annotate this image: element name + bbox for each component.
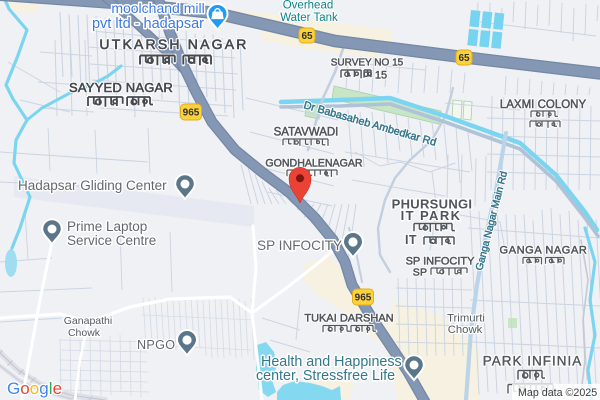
svg-text:GONDHALENAGAR: GONDHALENAGAR: [265, 158, 362, 170]
svg-text:SURVEY NO 15: SURVEY NO 15: [331, 58, 404, 69]
svg-text:Chowk: Chowk: [68, 327, 101, 339]
svg-text:TUKAI DARSHAN: TUKAI DARSHAN: [304, 313, 393, 325]
svg-text:Trimurti: Trimurti: [447, 313, 485, 325]
svg-text:IT PARK: IT PARK: [401, 208, 462, 223]
svg-text:LAXMI COLONY: LAXMI COLONY: [500, 99, 587, 111]
svg-text:SP INFOCITY: SP INFOCITY: [257, 238, 342, 253]
svg-text:Prime Laptop: Prime Laptop: [67, 219, 147, 234]
svg-text:SATAVWADI: SATAVWADI: [274, 127, 339, 139]
svg-text:o: o: [30, 379, 39, 398]
svg-text:65: 65: [458, 53, 470, 64]
svg-text:GANGA NAGAR: GANGA NAGAR: [500, 245, 588, 257]
svg-text:Map data ©2025: Map data ©2025: [518, 387, 597, 399]
svg-text:Service Centre: Service Centre: [67, 233, 156, 248]
svg-text:15: 15: [375, 70, 387, 82]
svg-text:UTKARSH NAGAR: UTKARSH NAGAR: [99, 36, 248, 52]
svg-text:e: e: [53, 379, 62, 398]
svg-text:Water Tank: Water Tank: [280, 12, 338, 24]
svg-text:965: 965: [355, 293, 372, 304]
svg-text:IT: IT: [405, 233, 417, 247]
svg-text:o: o: [20, 379, 29, 398]
svg-text:SAYYED NAGAR: SAYYED NAGAR: [69, 80, 173, 95]
svg-text:Ganapathi: Ganapathi: [64, 315, 112, 327]
svg-text:moolchand mill: moolchand mill: [111, 0, 204, 16]
svg-text:center, Stressfree Life: center, Stressfree Life: [256, 368, 395, 384]
svg-text:pvt ltd - hadapsar: pvt ltd - hadapsar: [92, 16, 204, 32]
svg-text:NPGO: NPGO: [137, 338, 175, 352]
svg-text:Overhead: Overhead: [283, 0, 334, 12]
svg-text:SP: SP: [413, 267, 428, 279]
svg-text:PARK INFINIA: PARK INFINIA: [483, 354, 583, 369]
svg-text:Hadapsar Gliding Center: Hadapsar Gliding Center: [18, 178, 167, 193]
svg-text:65: 65: [301, 31, 313, 42]
svg-text:g: g: [39, 379, 48, 398]
svg-text:965: 965: [183, 108, 200, 119]
svg-text:G: G: [7, 379, 20, 398]
svg-text:Chowk: Chowk: [448, 324, 483, 336]
